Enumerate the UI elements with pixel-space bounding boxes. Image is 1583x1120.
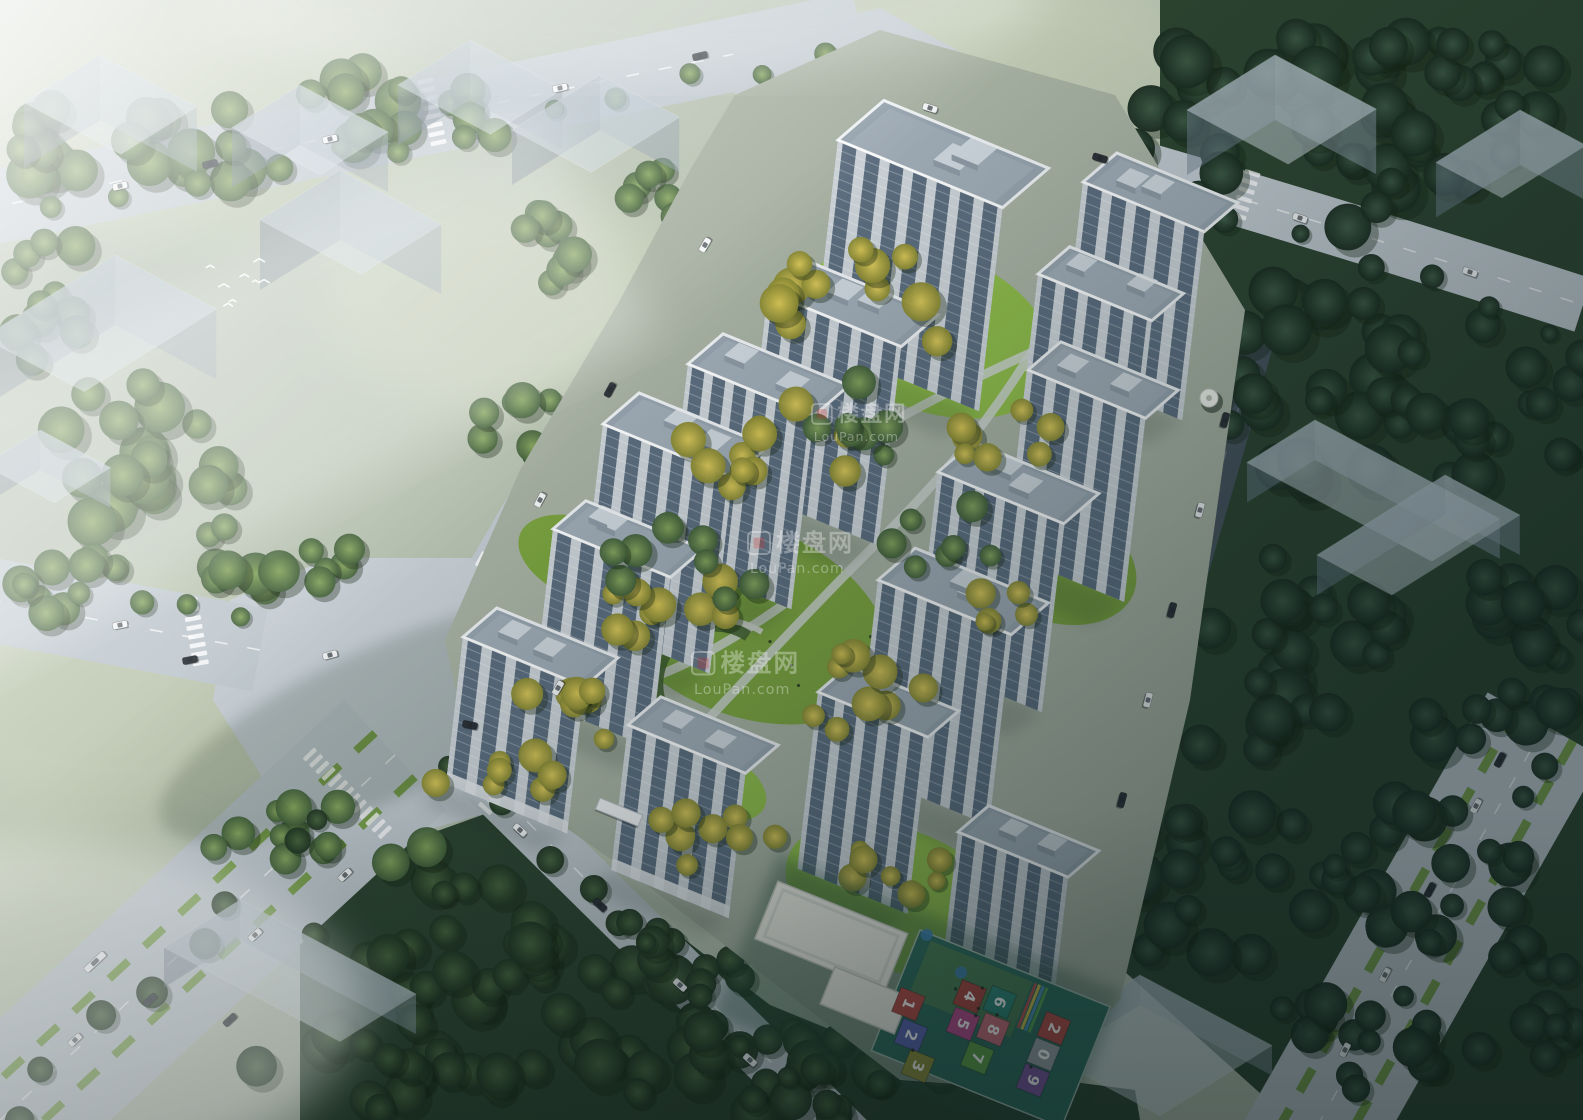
aerial-render: 12345678902楼盘网LouPan.com楼盘网LouPan.com楼盘网… — [0, 0, 1583, 1120]
watermark-brand-en: LouPan.com — [814, 429, 899, 444]
atmosphere — [0, 0, 1583, 1120]
watermark-brand-en: LouPan.com — [750, 561, 845, 577]
watermark-brand-cn: 楼盘网 — [721, 648, 801, 677]
watermark: 楼盘网LouPan.com — [812, 401, 907, 444]
watermark-brand-en: LouPan.com — [694, 682, 790, 698]
watermark-brand-cn: 楼盘网 — [776, 529, 854, 557]
watermark: 楼盘网LouPan.com — [692, 648, 800, 697]
watermark: 楼盘网LouPan.com — [748, 529, 854, 577]
watermark-brand-cn: 楼盘网 — [837, 401, 907, 427]
scene-canvas: 12345678902楼盘网LouPan.com楼盘网LouPan.com楼盘网… — [0, 0, 1583, 1120]
